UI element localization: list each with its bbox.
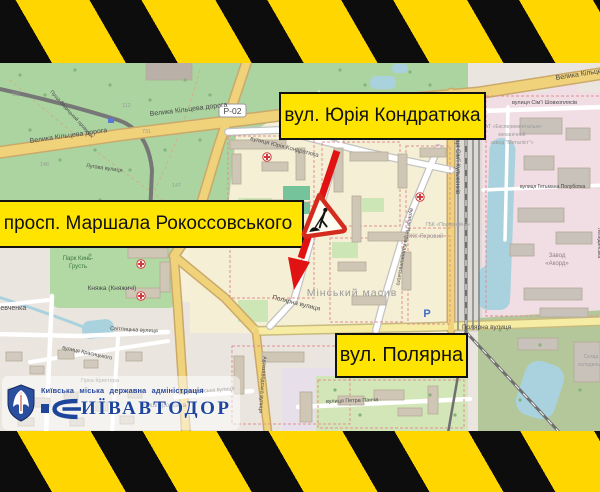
map-parcel: 146	[40, 162, 49, 168]
parking-icon: P	[423, 308, 430, 320]
logo-text-block: Київська міська державна адміністрація И…	[41, 386, 232, 421]
callout-kondratyuka-text: вул. Юрія Кондратюка	[284, 105, 480, 127]
logo-brand-text: ИЇВАВТОДОР	[41, 397, 232, 421]
map-label-lebedynska: Лебединська	[596, 228, 600, 258]
map-label-pat1: ПАТ «Експериментально-	[481, 124, 543, 130]
map-label-zavod2: «Акорд»	[545, 261, 569, 267]
kyivavtodor-logo: Київська міська державна адміністрація И…	[2, 376, 240, 430]
map-label-pat3: завод "Металіст"»	[490, 140, 533, 146]
map-label-shovkopliasiv: вулиця Сім'ї Шовкоплясів	[512, 100, 577, 106]
stylized-k-icon	[51, 397, 81, 421]
callout-polyarna-street: вул. Полярна	[335, 333, 468, 378]
map-label-pat2: механічний	[498, 131, 525, 138]
map-label-kniazha: Княжа (Княжичі)	[88, 284, 137, 292]
map-label-sklad1: Склад	[584, 354, 599, 360]
map-label-hetmana: вулиця Гетьмана Полуботка	[520, 184, 586, 190]
map-label-zavod1: Завод	[549, 253, 566, 259]
map-label-district: Мінський масив	[307, 287, 398, 299]
map-label-shevchenka: Шевченка	[0, 305, 26, 312]
medical-cross-icon	[137, 260, 145, 268]
callout-rokossovsky-avenue: просп. Маршала Рокоссовського	[0, 200, 304, 248]
logo-authority-text: Київська міська державна адміністрація	[41, 386, 232, 395]
kyiv-coat-of-arms-icon	[6, 383, 36, 423]
map-parcel: 147	[172, 183, 181, 189]
map-parcel: 111	[12, 92, 20, 98]
hazard-tape-top	[0, 0, 600, 63]
callout-kondratyuka-street: вул. Юрія Кондратюка	[279, 92, 486, 140]
map-parcel: 731	[142, 129, 151, 135]
poster-frame: P Р-02 Велика Кільцева дорога Велика Кіл…	[0, 0, 600, 492]
map-label-park2: Грусть	[69, 264, 87, 270]
logo-brand-rest: ИЇВАВТОДОР	[81, 399, 232, 418]
medical-cross-icon	[263, 153, 271, 161]
map-label-park1: Парк Кинь-	[63, 256, 94, 262]
callout-rokossovsky-text: просп. Маршала Рокоссовського	[4, 213, 292, 235]
hazard-tape-bottom	[0, 431, 600, 492]
map-label-poliarna: Полярна вулиця	[462, 324, 512, 331]
map-label-sklad2: холодильн.	[578, 362, 600, 368]
logo-k-mark	[41, 404, 49, 413]
medical-cross-icon	[137, 292, 145, 300]
medical-cross-icon	[416, 193, 424, 201]
callout-polyarna-text: вул. Полярна	[340, 344, 463, 367]
map-label-hbk: ГБК «Полярний-7»	[426, 221, 471, 228]
map-label-zhk: ЖК Яхровий	[409, 233, 444, 240]
map-parcel: 112	[122, 103, 131, 109]
